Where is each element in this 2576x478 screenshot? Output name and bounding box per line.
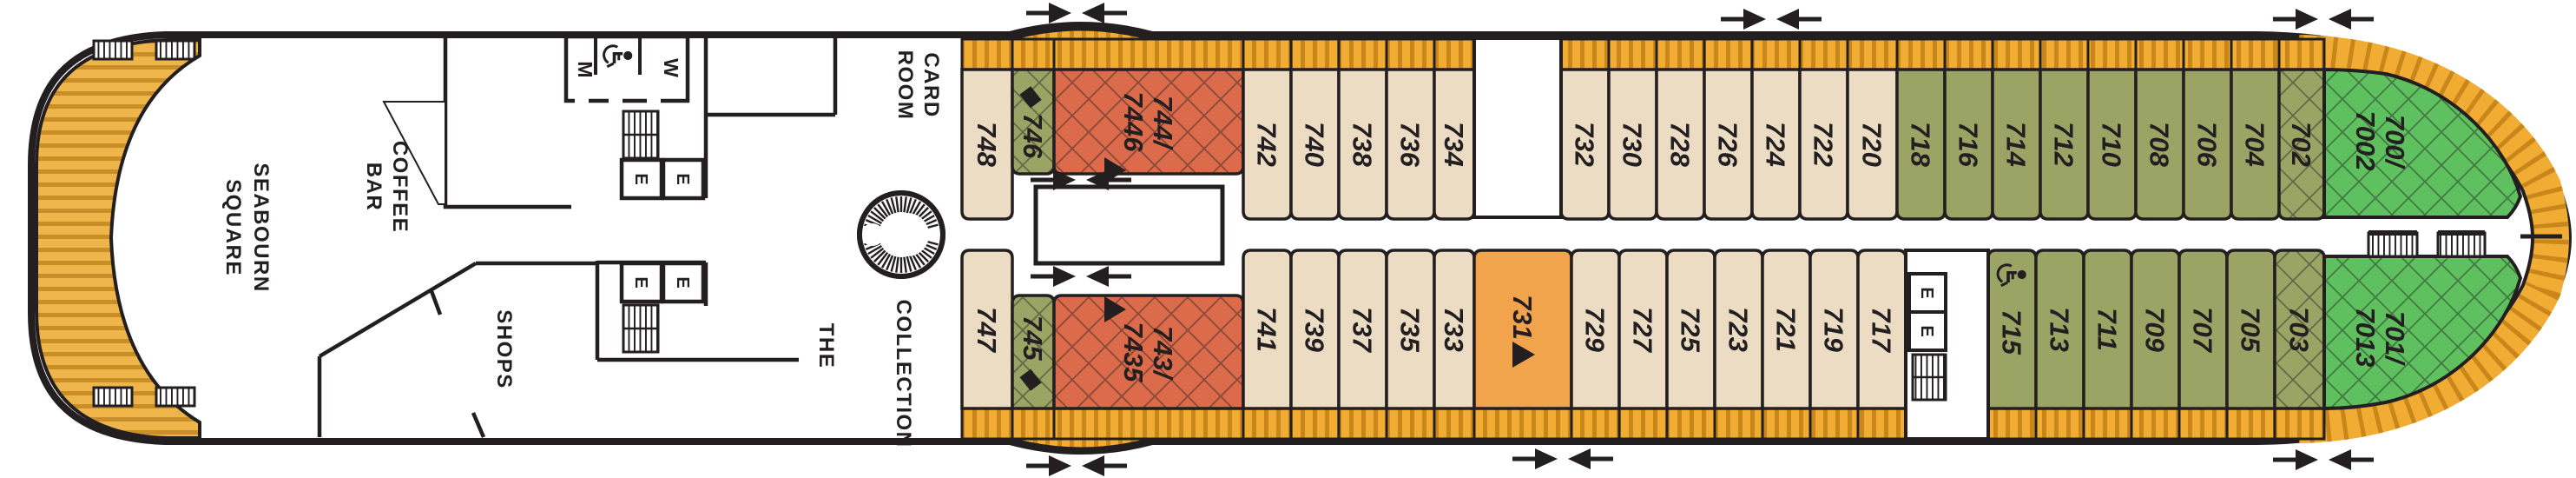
cabin-label-739: 739	[1300, 307, 1330, 352]
cabin-label: 7002	[2350, 111, 2381, 171]
balcony-731	[1474, 408, 1571, 439]
balcony-708	[2136, 39, 2184, 70]
shops-label: SHOPS	[492, 309, 516, 389]
the-collection-label: COLLECTION	[892, 300, 915, 448]
balcony-706	[2184, 39, 2231, 70]
the-collection-label: THE	[814, 323, 838, 369]
cabin-label-722: 722	[1808, 122, 1839, 167]
cabin-label-727: 727	[1628, 307, 1658, 353]
cabin-label-716: 716	[1953, 122, 1984, 167]
balcony-729	[1571, 408, 1619, 439]
spiral-staircase	[860, 193, 943, 276]
void-space-central	[1036, 187, 1222, 263]
cabin-label-728: 728	[1665, 122, 1696, 167]
cabin-label-723: 723	[1723, 307, 1754, 352]
balcony-709	[2131, 408, 2179, 439]
cabin-label-726: 726	[1713, 122, 1743, 167]
cabin-label-745: 745 ◆	[1018, 315, 1048, 391]
balcony-742	[1243, 39, 1291, 70]
elevator-label: E	[1917, 287, 1936, 298]
cabin-label-732: 732	[1570, 122, 1600, 167]
cabin-700-7002[interactable]: 700/ 7002	[2324, 70, 2520, 217]
cabin-label-742: 742	[1252, 122, 1282, 167]
balcony-744/7446	[1054, 39, 1243, 70]
balcony-722	[1800, 39, 1848, 70]
balcony-703	[2275, 408, 2324, 439]
cabin-label-747: 747	[972, 307, 1002, 353]
card-room-label: CARD	[919, 52, 943, 117]
coffee-bar-label: COFFEE	[388, 141, 412, 233]
balcony-724	[1752, 39, 1800, 70]
cabin-label-737: 737	[1347, 307, 1378, 353]
cabin-label-740: 740	[1300, 122, 1330, 167]
balcony-738	[1339, 39, 1387, 70]
section-divider-arrows-icon	[2273, 9, 2374, 30]
cabin-label-718: 718	[1906, 122, 1936, 167]
elevator-lobby-aft: E E	[1906, 250, 1988, 439]
balcony-728	[1657, 39, 1704, 70]
cabin-label: 701/	[2380, 311, 2410, 367]
deck-hatch	[94, 388, 132, 406]
balcony-733	[1434, 408, 1474, 439]
cabin-label: 7013	[2350, 308, 2381, 368]
cabin-label-738: 738	[1347, 122, 1378, 167]
cabin-label-717: 717	[1867, 307, 1897, 353]
cabin-label-725: 725	[1676, 307, 1706, 352]
cabin-label-734: 734	[1439, 122, 1469, 167]
balcony-717	[1858, 408, 1906, 439]
deck-hatch	[2438, 233, 2485, 256]
cabin-label-744-7446: 7446	[1118, 92, 1149, 153]
balcony-712	[2040, 39, 2088, 70]
card-room-label: ROOM	[893, 50, 917, 121]
balcony-723	[1715, 408, 1762, 439]
balcony-716	[1945, 39, 1993, 70]
cabin-label-702: 702	[2286, 122, 2316, 167]
deck-hatch	[94, 41, 132, 59]
balcony-732	[1561, 39, 1609, 70]
restrooms: M W	[566, 37, 688, 104]
balcony-715	[1988, 408, 2036, 439]
mens-restroom-label: M	[574, 61, 596, 77]
deck-hatch	[2368, 233, 2417, 256]
cabin-label-721: 721	[1771, 307, 1802, 352]
section-divider-arrows-icon	[1721, 9, 1822, 30]
balcony-705	[2227, 408, 2275, 439]
section-divider-arrows-icon	[1026, 455, 1127, 476]
balcony-710	[2088, 39, 2136, 70]
cabin-label-707: 707	[2188, 307, 2218, 353]
cabin-label-733: 733	[1439, 307, 1469, 352]
cabin-label-704: 704	[2240, 122, 2270, 167]
balcony-748	[962, 39, 1012, 70]
elevator-label: E	[673, 276, 692, 288]
cabin-label-715: 715	[1997, 309, 2027, 355]
cabin-label-736: 736	[1395, 122, 1426, 167]
cabin-label-748: 748	[972, 122, 1002, 167]
cabin-label-720: 720	[1857, 122, 1888, 167]
cabin-label-746: ◆ 746	[1018, 85, 1048, 159]
section-divider-arrows-icon	[1026, 3, 1127, 23]
balcony-718	[1897, 39, 1945, 70]
cabin-701-7013[interactable]: 701/ 7013	[2324, 256, 2520, 408]
balcony-747	[962, 408, 1012, 439]
balcony-739	[1291, 408, 1339, 439]
cabin-label-712: 712	[2049, 122, 2079, 167]
balcony-743/7435	[1054, 408, 1243, 439]
balcony-702	[2279, 39, 2324, 70]
balcony-725	[1667, 408, 1715, 439]
cabin-label-710: 710	[2097, 122, 2127, 167]
cabin-label-713: 713	[2045, 307, 2075, 352]
balcony-734	[1434, 39, 1474, 70]
cabin-label-705: 705	[2236, 307, 2266, 352]
balcony-713	[2036, 408, 2084, 439]
balcony-707	[2179, 408, 2227, 439]
balcony-730	[1609, 39, 1657, 70]
cabin-label-743-7435: 743/	[1148, 326, 1178, 382]
void-space	[1474, 38, 1561, 217]
balcony-727	[1619, 408, 1667, 439]
cabin-label: 700/	[2380, 115, 2410, 170]
cabin-label-709: 709	[2140, 307, 2171, 352]
elevator-label: E	[673, 173, 692, 184]
cabin-label-724: 724	[1761, 122, 1791, 167]
balcony-714	[1993, 39, 2040, 70]
coffee-bar-label: BAR	[362, 163, 385, 212]
cabin-label-708: 708	[2144, 122, 2175, 167]
balcony-740	[1291, 39, 1339, 70]
balcony-711	[2084, 408, 2131, 439]
cabin-label-714: 714	[2001, 122, 2032, 167]
elevator-label: E	[1917, 325, 1936, 336]
balcony-719	[1810, 408, 1858, 439]
cabin-label-741: 741	[1252, 307, 1282, 352]
section-divider-arrows-icon	[1512, 448, 1613, 469]
balcony-736	[1387, 39, 1434, 70]
cabin-label-735: 735	[1395, 307, 1426, 352]
cabin-label-730: 730	[1617, 122, 1648, 167]
deck-plan: M W E E E E 748◆ 746744/7446742740738736…	[0, 0, 2576, 478]
cabin-label-703: 703	[2284, 307, 2315, 352]
elevator-label: E	[631, 276, 650, 288]
seabourn-square-label: SEABOURN	[249, 163, 273, 292]
balcony-721	[1762, 408, 1810, 439]
cabin-label-711: 711	[2092, 308, 2123, 350]
balcony-735	[1387, 408, 1434, 439]
cabin-label-729: 729	[1580, 307, 1611, 352]
seabourn-square-label: SQUARE	[221, 179, 245, 276]
elevator-label: E	[631, 173, 650, 184]
womens-restroom-label: W	[660, 58, 682, 77]
deck-hatch	[156, 388, 194, 406]
balcony-741	[1243, 408, 1291, 439]
balcony-745	[1012, 408, 1054, 439]
balcony-720	[1848, 39, 1897, 70]
deck-hatch	[156, 41, 194, 59]
section-divider-arrows-icon	[2273, 449, 2374, 470]
cabin-label-719: 719	[1819, 307, 1849, 352]
balcony-737	[1339, 408, 1387, 439]
cabin-label-731: 731	[1507, 295, 1538, 340]
balcony-726	[1704, 39, 1752, 70]
cabin-label-743-7435: 7435	[1118, 322, 1149, 383]
cabin-label-744-7446: 744/	[1148, 96, 1178, 151]
balcony-704	[2231, 39, 2279, 70]
cabin-label-706: 706	[2192, 122, 2223, 167]
balcony-746	[1012, 39, 1054, 70]
